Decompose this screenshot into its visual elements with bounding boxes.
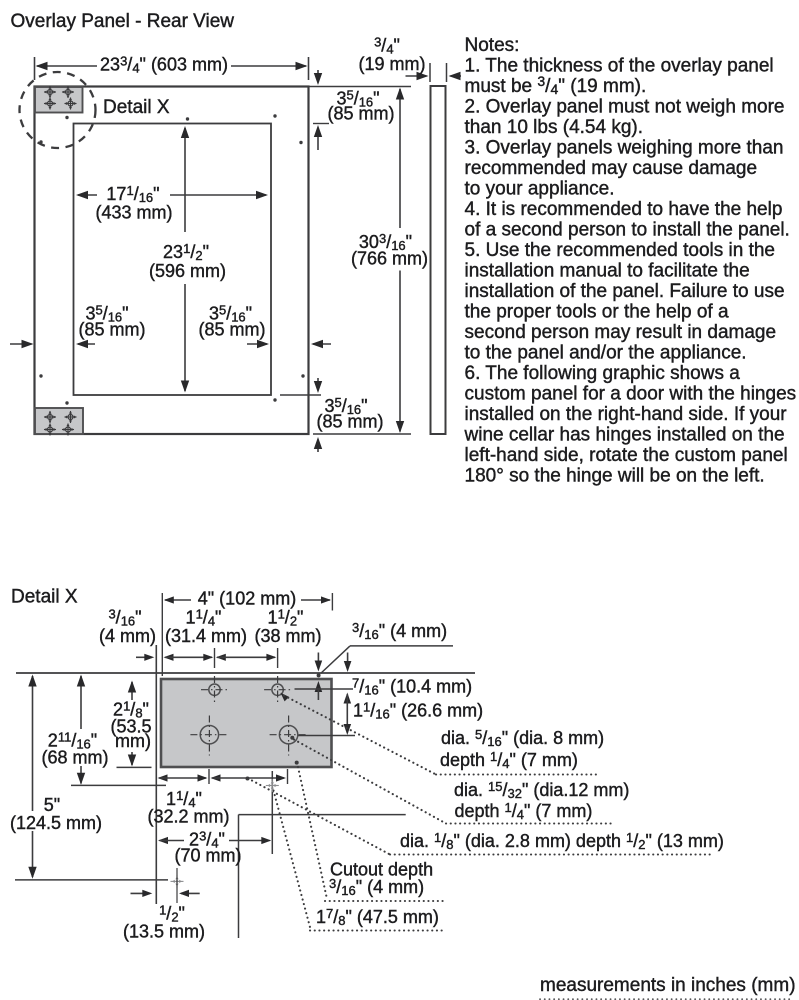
svg-text:(85 mm): (85 mm) bbox=[199, 320, 266, 340]
svg-text:Overlay Panel - Rear View: Overlay Panel - Rear View bbox=[11, 11, 235, 32]
svg-text:custom panel for a door with t: custom panel for a door with the hinges bbox=[465, 384, 797, 405]
svg-text:than 10 lbs (4.54 kg).: than 10 lbs (4.54 kg). bbox=[465, 117, 644, 138]
svg-text:measurements in inches (mm): measurements in inches (mm) bbox=[540, 975, 796, 996]
svg-text:11/16" (26.6 mm): 11/16" (26.6 mm) bbox=[353, 700, 483, 722]
svg-text:installation of the panel. Fai: installation of the panel. Failure to us… bbox=[465, 281, 785, 302]
svg-text:Detail X: Detail X bbox=[103, 97, 170, 118]
svg-text:180° so the hinge will be on t: 180° so the hinge will be on the left. bbox=[465, 466, 765, 487]
svg-text:3. Overlay panels weighing mor: 3. Overlay panels weighing more than bbox=[465, 138, 784, 159]
svg-text:to the panel and/or the applia: to the panel and/or the appliance. bbox=[465, 343, 747, 364]
svg-text:(596 mm): (596 mm) bbox=[149, 261, 226, 281]
svg-text:(85 mm): (85 mm) bbox=[317, 412, 384, 432]
svg-text:(85 mm): (85 mm) bbox=[328, 104, 395, 124]
svg-text:(38 mm): (38 mm) bbox=[255, 626, 322, 646]
svg-text:installation manual to facilit: installation manual to facilitate the bbox=[465, 261, 750, 282]
svg-text:mm): mm) bbox=[115, 731, 151, 751]
svg-text:6. The following graphic shows: 6. The following graphic shows a bbox=[465, 363, 741, 384]
svg-text:installed on the right-hand si: installed on the right-hand side. If you… bbox=[465, 404, 788, 425]
svg-text:5": 5" bbox=[44, 795, 60, 815]
svg-text:second person may result in da: second person may result in damage bbox=[465, 322, 777, 343]
svg-text:(433 mm): (433 mm) bbox=[95, 203, 172, 223]
svg-text:(4 mm): (4 mm) bbox=[99, 626, 156, 646]
svg-text:(85 mm): (85 mm) bbox=[79, 320, 146, 340]
svg-text:wine cellar has hinges install: wine cellar has hinges installed on the bbox=[464, 425, 785, 446]
svg-text:recommended may cause damage: recommended may cause damage bbox=[465, 158, 758, 179]
svg-text:depth 1/4" (7 mm): depth 1/4" (7 mm) bbox=[440, 749, 578, 771]
svg-text:17/8" (47.5 mm): 17/8" (47.5 mm) bbox=[316, 906, 439, 928]
svg-text:(31.4 mm): (31.4 mm) bbox=[165, 626, 247, 646]
svg-text:5. Use the recommended tools i: 5. Use the recommended tools in the bbox=[465, 240, 776, 261]
svg-text:dia. 15/32" (dia.12 mm): dia. 15/32" (dia.12 mm) bbox=[454, 779, 629, 801]
svg-text:(13.5 mm): (13.5 mm) bbox=[123, 922, 205, 942]
svg-text:(68 mm): (68 mm) bbox=[42, 748, 109, 768]
svg-text:of a second person to install: of a second person to install the panel. bbox=[465, 220, 790, 241]
svg-text:(32.2 mm): (32.2 mm) bbox=[147, 807, 229, 827]
svg-text:(19 mm): (19 mm) bbox=[359, 54, 426, 74]
svg-text:4. It is recommended to have t: 4. It is recommended to have the help bbox=[465, 199, 783, 220]
svg-text:1. The thickness of the overla: 1. The thickness of the overlay panel bbox=[465, 56, 774, 77]
svg-text:dia. 5/16" (dia. 8 mm): dia. 5/16" (dia. 8 mm) bbox=[441, 727, 604, 749]
svg-text:2. Overlay panel must not weig: 2. Overlay panel must not weigh more bbox=[465, 97, 785, 118]
svg-text:the proper tools or the help o: the proper tools or the help of a bbox=[465, 302, 729, 323]
svg-text:depth 1/4" (7 mm): depth 1/4" (7 mm) bbox=[455, 800, 593, 822]
svg-text:(124.5 mm): (124.5 mm) bbox=[10, 813, 102, 833]
svg-text:(766 mm): (766 mm) bbox=[351, 249, 428, 269]
svg-text:233/4" (603 mm): 233/4" (603 mm) bbox=[100, 54, 228, 76]
svg-text:left-hand side, rotate the cus: left-hand side, rotate the custom panel bbox=[465, 445, 788, 466]
svg-text:4" (102 mm): 4" (102 mm) bbox=[198, 589, 296, 609]
svg-text:Notes:: Notes: bbox=[465, 35, 520, 56]
svg-text:Detail X: Detail X bbox=[11, 587, 78, 608]
svg-text:to your appliance.: to your appliance. bbox=[465, 179, 615, 200]
svg-text:(70 mm): (70 mm) bbox=[175, 846, 242, 866]
